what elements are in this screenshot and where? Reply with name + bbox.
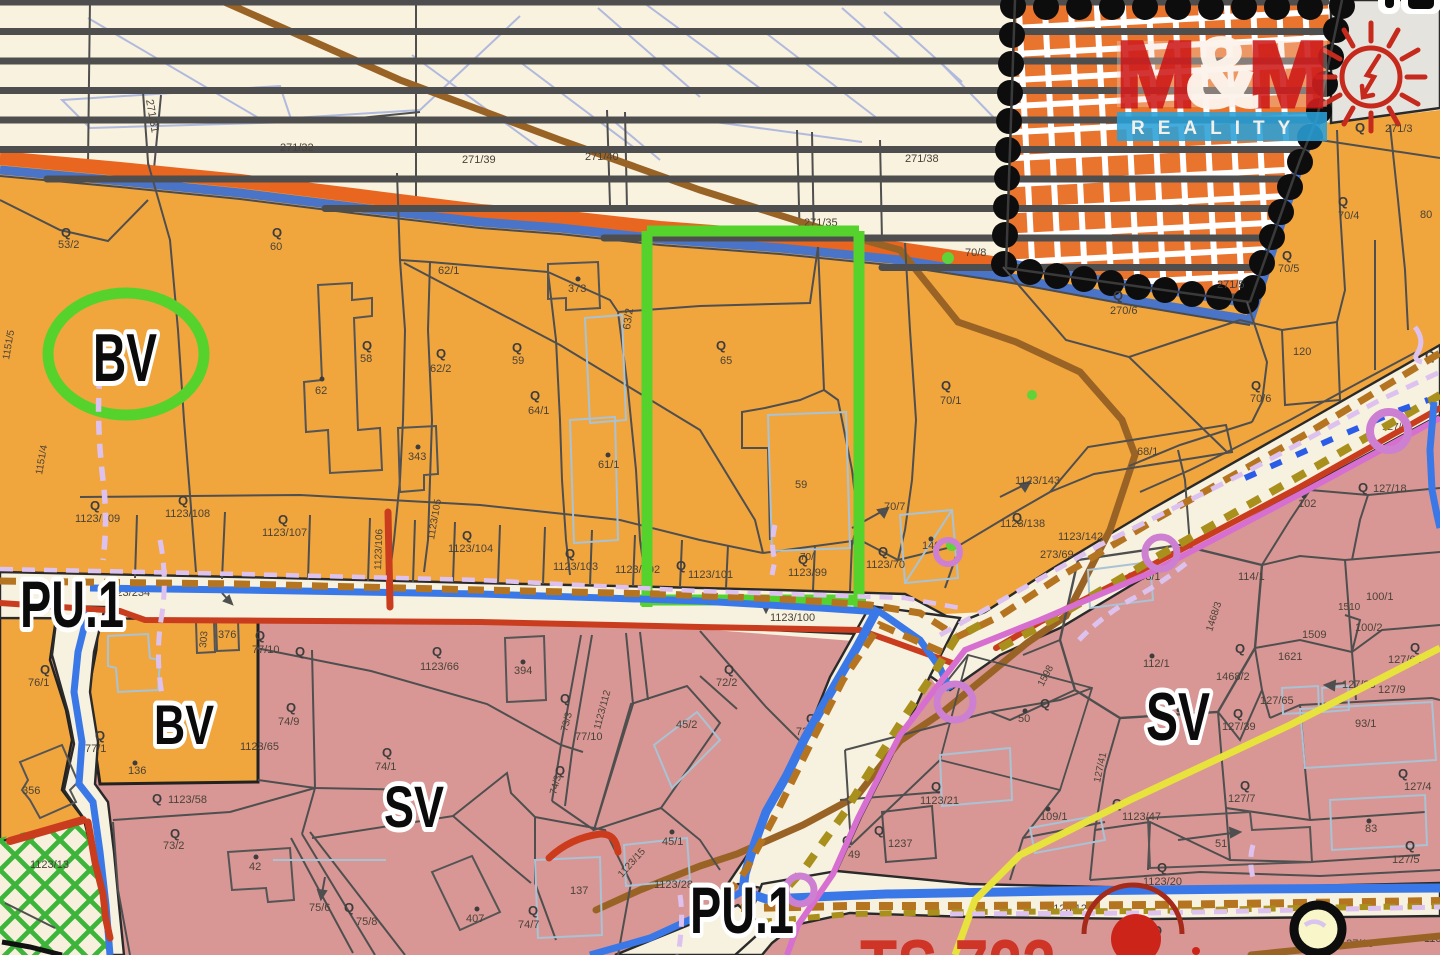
svg-text:59: 59: [512, 355, 524, 367]
svg-text:60: 60: [270, 241, 282, 253]
svg-text:1123/101: 1123/101: [688, 569, 733, 581]
svg-text:Q: Q: [931, 779, 941, 794]
svg-text:376: 376: [218, 629, 236, 641]
svg-text:127/7: 127/7: [1228, 793, 1256, 805]
svg-text:74/9: 74/9: [278, 716, 299, 728]
svg-text:1509: 1509: [1302, 629, 1326, 641]
svg-text:49: 49: [848, 849, 860, 861]
svg-text:70/6: 70/6: [1250, 393, 1271, 405]
svg-text:Q: Q: [1012, 510, 1022, 525]
svg-text:SV: SV: [1146, 679, 1210, 755]
svg-text:65: 65: [720, 355, 732, 367]
svg-text:1123/21: 1123/21: [920, 795, 959, 807]
svg-text:Q: Q: [462, 528, 472, 543]
svg-text:75/8: 75/8: [356, 916, 377, 928]
svg-text:271/40: 271/40: [585, 151, 619, 163]
svg-text:Q: Q: [555, 763, 565, 778]
svg-text:Q: Q: [1040, 696, 1050, 711]
svg-text:Q: Q: [874, 823, 884, 838]
svg-text:Q: Q: [1157, 860, 1167, 875]
svg-text:373: 373: [568, 283, 586, 295]
svg-text:53/2: 53/2: [58, 239, 79, 251]
svg-text:Q: Q: [676, 558, 686, 573]
svg-text:Q: Q: [40, 662, 50, 677]
svg-text:127/4: 127/4: [1404, 781, 1432, 793]
svg-text:114/1: 114/1: [1238, 571, 1265, 583]
svg-text:137: 137: [570, 885, 588, 897]
svg-text:271/32: 271/32: [280, 142, 314, 154]
svg-text:PU.1: PU.1: [690, 873, 794, 947]
svg-text:62/2: 62/2: [430, 363, 451, 375]
svg-text:394: 394: [514, 665, 532, 677]
svg-text:45/2: 45/2: [676, 719, 697, 731]
svg-text:127/18: 127/18: [1373, 483, 1407, 495]
svg-text:M: M: [1249, 24, 1327, 126]
svg-text:127/65: 127/65: [1260, 695, 1294, 707]
svg-text:93/1: 93/1: [1355, 718, 1376, 730]
svg-text:127/5: 127/5: [1392, 854, 1420, 866]
svg-text:Q: Q: [1235, 641, 1245, 656]
svg-text:Q: Q: [716, 338, 726, 353]
svg-text:1123/66: 1123/66: [420, 661, 459, 673]
svg-text:Q: Q: [878, 544, 888, 559]
svg-text:61/1: 61/1: [598, 459, 619, 471]
svg-text:74/1: 74/1: [375, 761, 396, 773]
svg-text:Q: Q: [90, 498, 100, 513]
svg-text:75/6: 75/6: [309, 902, 330, 914]
svg-text:Q: Q: [344, 900, 354, 915]
svg-text:64/1: 64/1: [528, 405, 549, 417]
svg-text:51: 51: [1215, 838, 1227, 850]
svg-text:Q: Q: [1405, 838, 1415, 853]
svg-text:Q: Q: [362, 338, 372, 353]
svg-text:Q: Q: [295, 644, 305, 659]
svg-text:Q: Q: [436, 346, 446, 361]
svg-text:1123/100: 1123/100: [770, 612, 815, 624]
svg-text:273/69: 273/69: [1040, 549, 1074, 561]
svg-text:Q: Q: [152, 791, 162, 806]
svg-text:Q: Q: [382, 745, 392, 760]
svg-text:112/1: 112/1: [1143, 658, 1170, 670]
svg-text:127/9: 127/9: [1378, 684, 1406, 696]
svg-text:Q: Q: [1398, 766, 1408, 781]
svg-text:73/2: 73/2: [163, 840, 184, 852]
svg-text:303: 303: [198, 630, 210, 648]
svg-text:Q: Q: [798, 552, 808, 567]
svg-text:Q: Q: [1338, 194, 1348, 209]
svg-text:100/2: 100/2: [1355, 622, 1383, 634]
svg-text:BV: BV: [93, 320, 157, 396]
svg-text:1123/28: 1123/28: [654, 879, 693, 891]
svg-text:109/1: 109/1: [1040, 811, 1068, 823]
svg-text:Q: Q: [1410, 640, 1420, 655]
svg-text:77/1: 77/1: [85, 743, 106, 755]
svg-text:62/1: 62/1: [438, 265, 459, 277]
svg-text:70/1: 70/1: [940, 395, 961, 407]
svg-text:80: 80: [1420, 209, 1432, 221]
svg-text:Q: Q: [1251, 378, 1261, 393]
svg-text:1123/138: 1123/138: [1000, 518, 1045, 530]
svg-text:270/6: 270/6: [1110, 305, 1138, 317]
svg-text:1123/102: 1123/102: [615, 564, 660, 576]
svg-text:Q: Q: [560, 691, 570, 706]
svg-text:1621: 1621: [1278, 651, 1302, 663]
svg-text:Q: Q: [1282, 248, 1292, 263]
svg-text:1123/107: 1123/107: [262, 527, 307, 539]
svg-text:Q: Q: [530, 388, 540, 403]
svg-text:PU.1: PU.1: [20, 567, 124, 641]
svg-text:1237: 1237: [888, 838, 912, 850]
svg-text:Q: Q: [1240, 778, 1250, 793]
svg-text:Q: Q: [1355, 120, 1365, 135]
svg-text:Q: Q: [941, 378, 951, 393]
svg-text:1123/65: 1123/65: [240, 741, 279, 753]
svg-text:42: 42: [249, 861, 261, 873]
svg-text:77/10: 77/10: [575, 731, 603, 743]
svg-text:76/1: 76/1: [28, 677, 49, 689]
svg-text:100/1: 100/1: [1366, 591, 1394, 603]
svg-text:271/3: 271/3: [1385, 123, 1413, 135]
svg-text:Q: Q: [278, 512, 288, 527]
svg-text:1123/109: 1123/109: [75, 513, 120, 525]
svg-text:Q: Q: [1233, 706, 1243, 721]
svg-text:1123/103: 1123/103: [553, 561, 598, 573]
svg-text:407: 407: [466, 913, 484, 925]
svg-text:Q: Q: [272, 225, 282, 240]
svg-text:50: 50: [1018, 713, 1030, 725]
svg-text:59: 59: [795, 479, 807, 491]
svg-text:Q: Q: [432, 644, 442, 659]
svg-text:SV: SV: [384, 775, 444, 840]
svg-text:70/7: 70/7: [884, 501, 905, 513]
svg-text:1123/104: 1123/104: [448, 543, 493, 555]
svg-text:74/7: 74/7: [518, 919, 539, 931]
svg-text:TS 723: TS 723: [860, 923, 1056, 955]
svg-text:Q: Q: [178, 493, 188, 508]
svg-text:1123/142: 1123/142: [1058, 531, 1103, 543]
svg-text:REALITY: REALITY: [1131, 118, 1303, 139]
svg-text:271/5: 271/5: [1217, 279, 1245, 291]
svg-text:72/2: 72/2: [716, 677, 737, 689]
svg-text:Q: Q: [1358, 480, 1368, 495]
svg-text:1123/108: 1123/108: [165, 508, 210, 520]
svg-text:70/4: 70/4: [1338, 210, 1359, 222]
svg-text:Q: Q: [95, 728, 105, 743]
svg-text:343: 343: [408, 451, 426, 463]
svg-text:70/5: 70/5: [1278, 263, 1299, 275]
svg-text:Q: Q: [512, 340, 522, 355]
svg-text:70/8: 70/8: [965, 247, 986, 259]
svg-text:1123/99: 1123/99: [788, 567, 827, 579]
svg-text:Q: Q: [255, 628, 265, 643]
svg-text:1123/106: 1123/106: [373, 528, 385, 570]
svg-text:127/39: 127/39: [1222, 721, 1256, 733]
svg-text:Q: Q: [170, 826, 180, 841]
svg-text:120: 120: [1293, 346, 1311, 358]
svg-text:58: 58: [360, 353, 372, 365]
svg-text:136: 136: [128, 765, 146, 777]
svg-text:271/38: 271/38: [905, 153, 939, 165]
svg-text:1123/70: 1123/70: [866, 559, 905, 571]
svg-text:1468/2: 1468/2: [1216, 671, 1250, 683]
svg-text:1123/13: 1123/13: [30, 859, 69, 871]
svg-text:1510: 1510: [1338, 602, 1361, 613]
svg-text:68/1: 68/1: [1137, 446, 1158, 458]
svg-text:Q: Q: [528, 903, 538, 918]
svg-text:83: 83: [1365, 823, 1377, 835]
svg-text:45/1: 45/1: [662, 836, 683, 848]
svg-text:271/39: 271/39: [462, 154, 496, 166]
svg-text:77/10: 77/10: [252, 644, 280, 656]
svg-text:1123/143: 1123/143: [1015, 475, 1060, 487]
svg-text:Q: Q: [286, 700, 296, 715]
svg-text:Q: Q: [565, 546, 575, 561]
svg-text:1123/47: 1123/47: [1122, 811, 1161, 823]
svg-text:1123/58: 1123/58: [168, 794, 207, 806]
svg-text:Q: Q: [724, 662, 734, 677]
svg-text:102: 102: [1298, 498, 1316, 510]
svg-text:62: 62: [315, 385, 327, 397]
svg-text:Q: Q: [61, 225, 71, 240]
svg-text:BV: BV: [154, 693, 214, 756]
svg-text:Q: Q: [1113, 288, 1123, 303]
svg-text:356: 356: [22, 785, 40, 797]
